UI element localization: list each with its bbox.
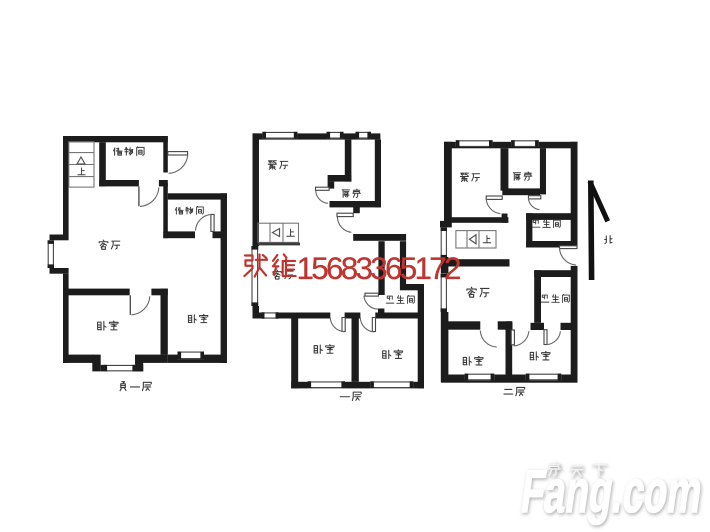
svg-text:Fang.com: Fang.com bbox=[517, 457, 707, 525]
svg-text:15683365172: 15683365172 bbox=[297, 250, 462, 286]
